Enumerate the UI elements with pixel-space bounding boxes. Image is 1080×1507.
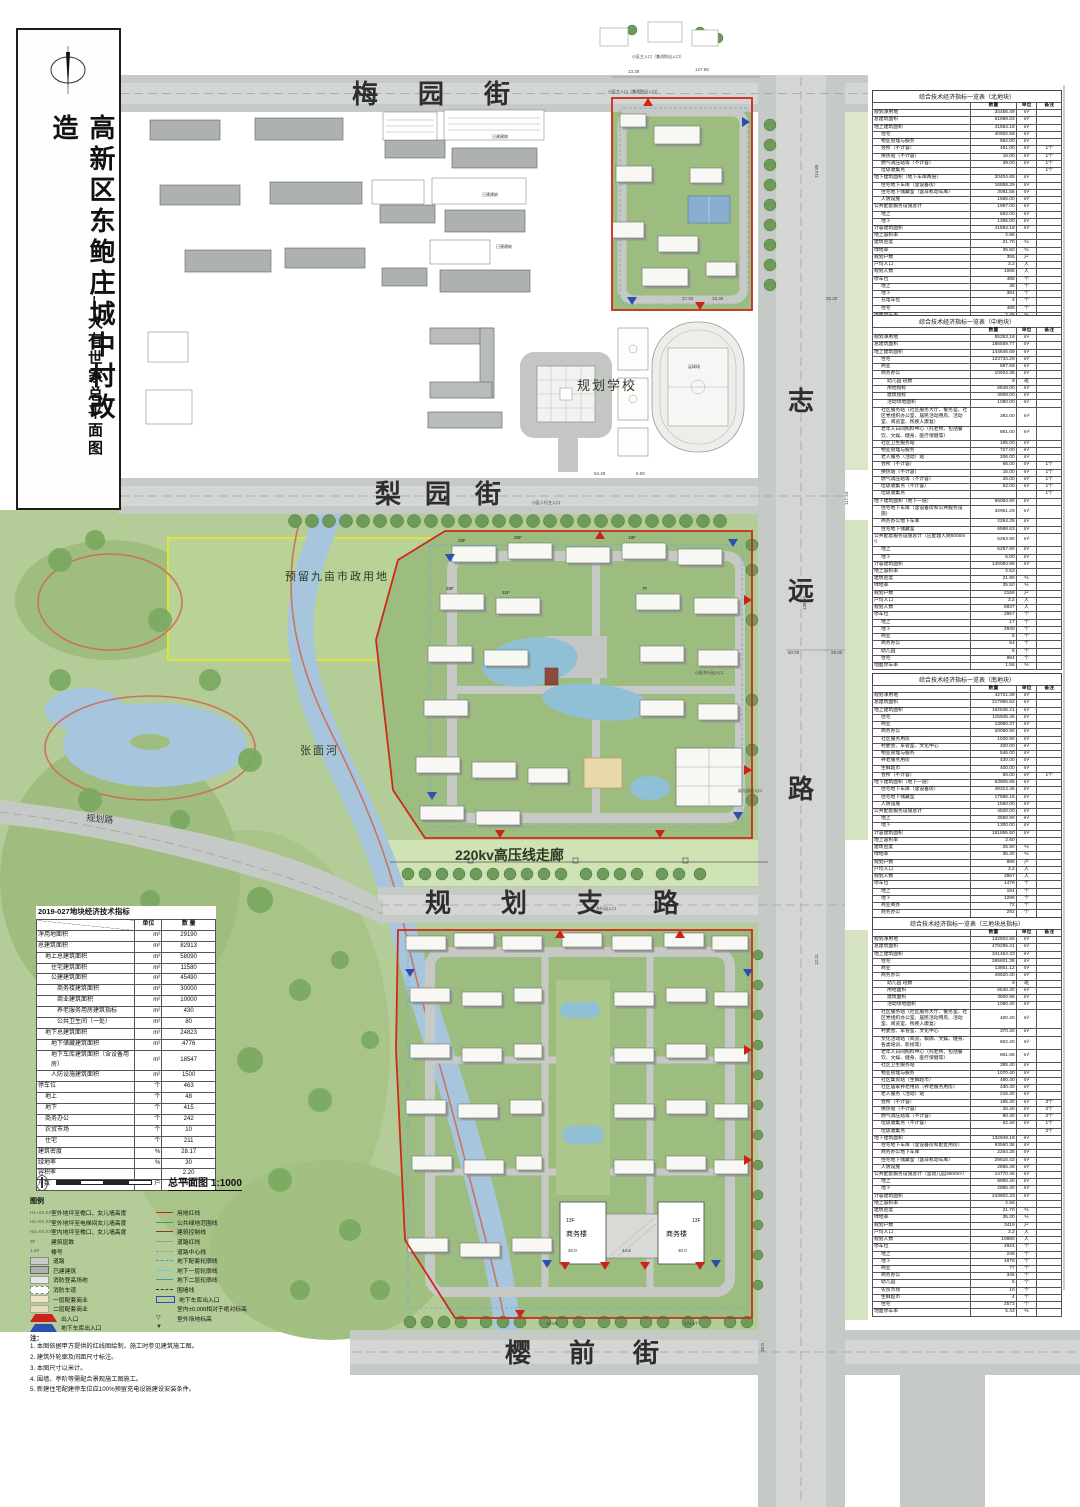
football-label: 足球场 bbox=[688, 363, 700, 369]
planned-school: 规划学校 足球场 bbox=[428, 322, 744, 472]
svg-text:27.93: 27.93 bbox=[682, 296, 694, 301]
street-zhiyuan-2: 远 bbox=[788, 576, 814, 606]
river-label: 张面河 bbox=[300, 744, 339, 757]
note-item: 4. 围墙、亭阶等需配合景观施工图施工。 bbox=[30, 1375, 360, 1386]
code-symbol: 3F bbox=[30, 1239, 47, 1245]
office-floors: 13F bbox=[566, 1218, 575, 1224]
code-symbol: H3=XX.XX bbox=[30, 1229, 47, 1235]
block-2019-027-table: 2019-027地块经济技术指标单位数 量净用地面积m²29190总建筑面积m²… bbox=[36, 906, 216, 1191]
svg-text:6.00: 6.00 bbox=[636, 471, 645, 476]
legend-item: 地下一层轮廓线 bbox=[156, 1266, 282, 1276]
svg-text:13.30: 13.30 bbox=[628, 69, 640, 74]
note-item: 3. 本图尺寸以米计。 bbox=[30, 1364, 360, 1375]
office-height: 30.0 bbox=[568, 1248, 577, 1253]
legend-title: 图例 bbox=[30, 1196, 282, 1206]
svg-text:54.49: 54.49 bbox=[594, 471, 606, 476]
street-liyuan: 梨园街 bbox=[375, 479, 525, 509]
legend-item: 室内±0.000相对于绝对标高 bbox=[156, 1304, 282, 1314]
svg-text:50.00: 50.00 bbox=[788, 650, 800, 655]
legend-item: 围墙线 bbox=[156, 1285, 282, 1295]
svg-text:10.00: 10.00 bbox=[546, 1321, 558, 1326]
elev-in-symbol bbox=[156, 1306, 173, 1312]
office-width: 44.8 bbox=[622, 1248, 631, 1253]
built-label: 已建建筑 bbox=[482, 191, 498, 197]
built-label: 已建建筑 bbox=[492, 133, 508, 139]
elev-out-symbol bbox=[156, 1315, 173, 1321]
legend-item: 公共绿地范围线 bbox=[156, 1218, 282, 1228]
legend-item: 一层配套商业 bbox=[30, 1294, 148, 1304]
line-darkred-symbol bbox=[156, 1231, 173, 1232]
legend-item: 消防车道 bbox=[30, 1285, 148, 1295]
street-meiyuan: 梅园街 bbox=[352, 79, 550, 109]
scale-bar-row: 总平面图 1:1000 bbox=[36, 1174, 242, 1191]
note-item: 2. 建筑外轮廓及间距尺寸标注。 bbox=[30, 1353, 360, 1364]
box-road-symbol bbox=[30, 1257, 49, 1265]
office-label: 商务楼 bbox=[666, 1229, 687, 1238]
notes-title: 注： bbox=[30, 1332, 360, 1342]
box-shop2-symbol bbox=[30, 1305, 49, 1313]
notes-list: 1. 本图依据甲方提供的红线图绘制，施工时参见建筑施工图。2. 建筑外轮廓及间距… bbox=[30, 1342, 360, 1396]
plan-scale-label: 总平面图 1:1000 bbox=[168, 1174, 242, 1191]
legend-item: H3=XX.XX室内地坪至檐口、女儿墙高度 bbox=[30, 1227, 148, 1237]
line-gray-symbol bbox=[156, 1241, 173, 1242]
svg-text:15.30: 15.30 bbox=[712, 296, 724, 301]
power-corridor-label: 220kv高压线走廊 bbox=[455, 847, 564, 863]
floor-tag: 18F bbox=[628, 535, 636, 540]
tri-red-symbol bbox=[30, 1314, 57, 1322]
legend-item: 已建建筑 bbox=[30, 1266, 148, 1276]
svg-text:25.20: 25.20 bbox=[826, 296, 838, 301]
svg-text:12.11: 12.11 bbox=[814, 954, 819, 965]
indicator-table-north: 综合技术经济指标一览表（北地块）数量单位备注规划净用地34456.49m²总建筑… bbox=[872, 90, 1062, 320]
code-symbol: 1-2# bbox=[30, 1248, 47, 1254]
school-label: 规划学校 bbox=[577, 378, 637, 393]
svg-text:174.17: 174.17 bbox=[684, 1321, 698, 1326]
legend-item: 出入口 bbox=[30, 1314, 148, 1324]
street-guihua-zhilu: 规划支路 bbox=[425, 888, 729, 918]
floor-tag: 25F bbox=[446, 586, 454, 591]
line-teal-symbol bbox=[156, 1279, 173, 1280]
mini-compass-icon bbox=[36, 1175, 48, 1191]
legend-item: 3F建筑层数 bbox=[30, 1237, 148, 1247]
code-symbol: H1=XX.XX bbox=[30, 1210, 47, 1216]
legend-item: 室外场地标高 bbox=[156, 1314, 282, 1324]
legend-right-column: 用地红线公共绿地范围线建筑控制线道路红线道路中心线地下配套轮廓线地下一层轮廓线地… bbox=[156, 1208, 282, 1333]
legend: 图例 H1=XX.XX室外地坪至檐口、女儿墙高度H2=XX.XX室外地坪至电梯间… bbox=[30, 1196, 282, 1333]
box-fire-symbol bbox=[30, 1276, 49, 1284]
garage-symbol bbox=[156, 1296, 175, 1303]
box-built-symbol bbox=[30, 1266, 49, 1274]
line-red-symbol bbox=[156, 1212, 173, 1213]
title-block: 高新区东鲍庄城中村改造 —大有世家总平面图 bbox=[16, 28, 121, 510]
legend-item: 二层配套商业 bbox=[30, 1304, 148, 1314]
line-blue-dash-symbol bbox=[156, 1260, 173, 1261]
north-street-blocks bbox=[600, 22, 718, 46]
street-zhiyuan-3: 路 bbox=[788, 774, 815, 804]
svg-text:幼儿园出入口: 幼儿园出入口 bbox=[738, 787, 762, 793]
roadside-green bbox=[845, 110, 868, 1320]
svg-text:小区主入口（兼消防出入口）: 小区主入口（兼消防出入口） bbox=[608, 88, 660, 94]
legend-item: 用地红线 bbox=[156, 1208, 282, 1218]
note-item: 1. 本图依据甲方提供的红线图绘制，施工时参见建筑施工图。 bbox=[30, 1342, 360, 1353]
floor-tag: 25F bbox=[514, 535, 522, 540]
svg-text:136.69: 136.69 bbox=[802, 596, 807, 610]
box-lane-symbol bbox=[30, 1286, 49, 1294]
legend-item: H1=XX.XX室外地坪至檐口、女儿墙高度 bbox=[30, 1208, 148, 1218]
floor-tag: 21F bbox=[502, 590, 510, 595]
line-wall-symbol bbox=[156, 1289, 173, 1290]
box-shop1-symbol bbox=[30, 1295, 49, 1303]
office-label: 商务楼 bbox=[566, 1229, 587, 1238]
legend-item: H2=XX.XX室外地坪至电梯间女儿墙高度 bbox=[30, 1218, 148, 1228]
legend-item: 建筑控制线 bbox=[156, 1227, 282, 1237]
legend-left-column: H1=XX.XX室外地坪至檐口、女儿墙高度H2=XX.XX室外地坪至电梯间女儿墙… bbox=[30, 1208, 148, 1333]
tri-blue-symbol bbox=[30, 1324, 57, 1332]
notes: 注： 1. 本图依据甲方提供的红线图绘制，施工时参见建筑施工图。2. 建筑外轮廓… bbox=[30, 1332, 360, 1396]
drawing-title: —大有世家总平面图 bbox=[84, 296, 105, 511]
svg-text:25.00: 25.00 bbox=[831, 650, 843, 655]
indicator-table-middle: 综合技术经济指标一览表（中地块）数量单位备注规划净用地55253.16m²总建筑… bbox=[872, 315, 1062, 670]
line-center-symbol bbox=[156, 1251, 173, 1252]
floor-tag: 25F bbox=[458, 538, 466, 543]
svg-text:小区主入口（兼消防出入口）: 小区主入口（兼消防出入口） bbox=[632, 53, 684, 59]
svg-text:车行出入口: 车行出入口 bbox=[596, 905, 616, 911]
svg-text:114.89: 114.89 bbox=[814, 164, 819, 178]
line-green-symbol bbox=[156, 1222, 173, 1223]
legend-item: 道路 bbox=[30, 1256, 148, 1266]
line-cyan-symbol bbox=[156, 1270, 173, 1271]
legend-item: 消防登高场地 bbox=[30, 1275, 148, 1285]
indicator-table-total: 综合技术经济指标一览表（三地块总指标）数量单位备注规划净用地132502.55m… bbox=[872, 917, 1062, 1317]
svg-text:36.0: 36.0 bbox=[760, 1343, 765, 1352]
project-title: 高新区东鲍庄城中村改造 bbox=[46, 114, 120, 444]
legend-item: 地下配套轮廓线 bbox=[156, 1256, 282, 1266]
graphic-scale-bar bbox=[56, 1180, 152, 1186]
legend-item: 1-2#楼号 bbox=[30, 1246, 148, 1256]
office-height: 30.0 bbox=[678, 1248, 687, 1253]
built-label: 已建建筑 bbox=[496, 243, 512, 249]
north-compass-icon bbox=[44, 42, 92, 98]
reserved-label: 预留九亩市政用地 bbox=[285, 569, 389, 583]
site-plan-sheet: 已建建筑 已建建筑 已建建筑 规划学校 足球场 bbox=[0, 0, 1080, 1507]
svg-text:117.53: 117.53 bbox=[844, 491, 849, 505]
legend-item: 道路中心线 bbox=[156, 1246, 282, 1256]
code-symbol: H2=XX.XX bbox=[30, 1219, 47, 1225]
svg-text:小区人行主入口: 小区人行主入口 bbox=[532, 499, 560, 505]
office-floors: 13F bbox=[692, 1218, 701, 1224]
svg-text:小区车行出入口: 小区车行出入口 bbox=[695, 669, 723, 675]
street-zhiyuan-1: 志 bbox=[788, 386, 814, 416]
floor-tag: 7F bbox=[642, 586, 648, 591]
svg-text:127.65: 127.65 bbox=[695, 67, 709, 72]
note-item: 5. 新建住宅配建停车位应100%预留充电设施建设安装条件。 bbox=[30, 1385, 360, 1396]
street-yingqian: 樱前街 bbox=[505, 1338, 697, 1368]
legend-item: 地下二层轮廓线 bbox=[156, 1275, 282, 1285]
indicator-table-south: 综合技术经济指标一览表（南地块）数量单位备注规划净用地42721.39m²总建筑… bbox=[872, 673, 1062, 946]
legend-item: 道路红线 bbox=[156, 1237, 282, 1247]
legend-item: 地下车库出入口 bbox=[156, 1294, 282, 1304]
